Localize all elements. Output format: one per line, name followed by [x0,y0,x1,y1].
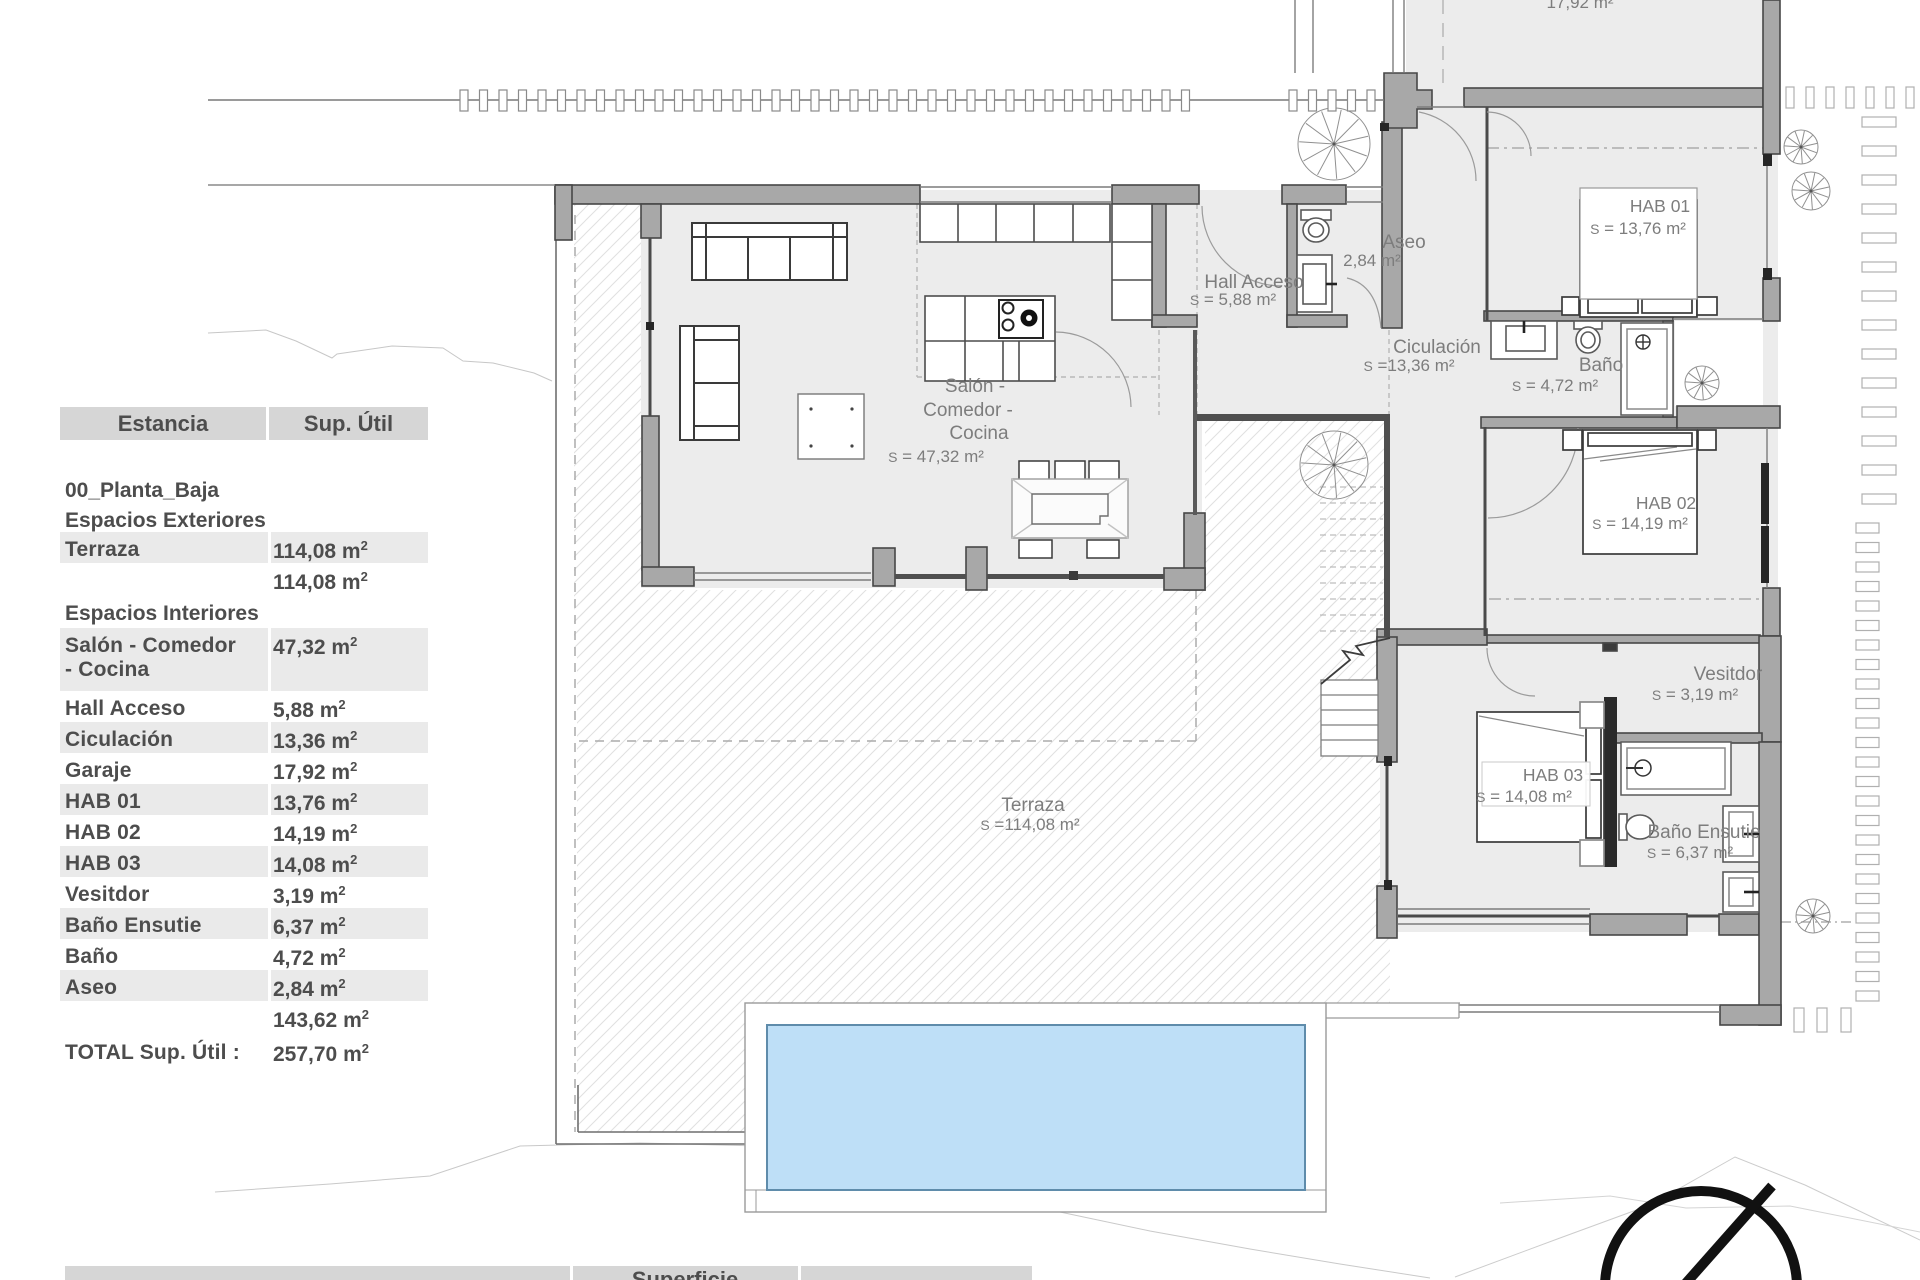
svg-text:Vesitdor: Vesitdor [1694,664,1763,685]
svg-text:17,92 m²: 17,92 m² [1546,0,1613,12]
svg-text:S =13,36 m²: S =13,36 m² [1363,356,1454,375]
svg-text:Cocina: Cocina [949,423,1009,444]
svg-text:S = 5,88 m²: S = 5,88 m² [1190,290,1277,309]
svg-text:S = 14,19 m²: S = 14,19 m² [1592,514,1688,533]
svg-text:2,84 m²: 2,84 m² [1343,251,1401,270]
svg-text:S = 6,37 m²: S = 6,37 m² [1647,843,1734,862]
svg-text:Salón -: Salón - [945,376,1005,397]
svg-text:S = 47,32 m²: S = 47,32 m² [888,447,984,466]
svg-text:Aseo: Aseo [1382,232,1425,253]
svg-text:HAB 03: HAB 03 [1523,765,1583,785]
svg-text:Comedor -: Comedor - [923,400,1013,421]
svg-text:S = 3,19 m²: S = 3,19 m² [1652,685,1739,704]
svg-text:S = 4,72 m²: S = 4,72 m² [1512,376,1599,395]
svg-text:HAB 02: HAB 02 [1636,493,1696,513]
svg-text:S = 14,08 m²: S = 14,08 m² [1476,787,1572,806]
svg-text:Baño: Baño [1579,355,1623,376]
svg-text:Terraza: Terraza [1001,795,1065,816]
svg-text:S =114,08 m²: S =114,08 m² [980,815,1080,834]
svg-text:Ciculación: Ciculación [1393,337,1481,358]
svg-text:S = 13,76 m²: S = 13,76 m² [1590,219,1686,238]
svg-text:HAB 01: HAB 01 [1630,196,1690,216]
svg-text:Baño Ensutie: Baño Ensutie [1647,822,1760,843]
